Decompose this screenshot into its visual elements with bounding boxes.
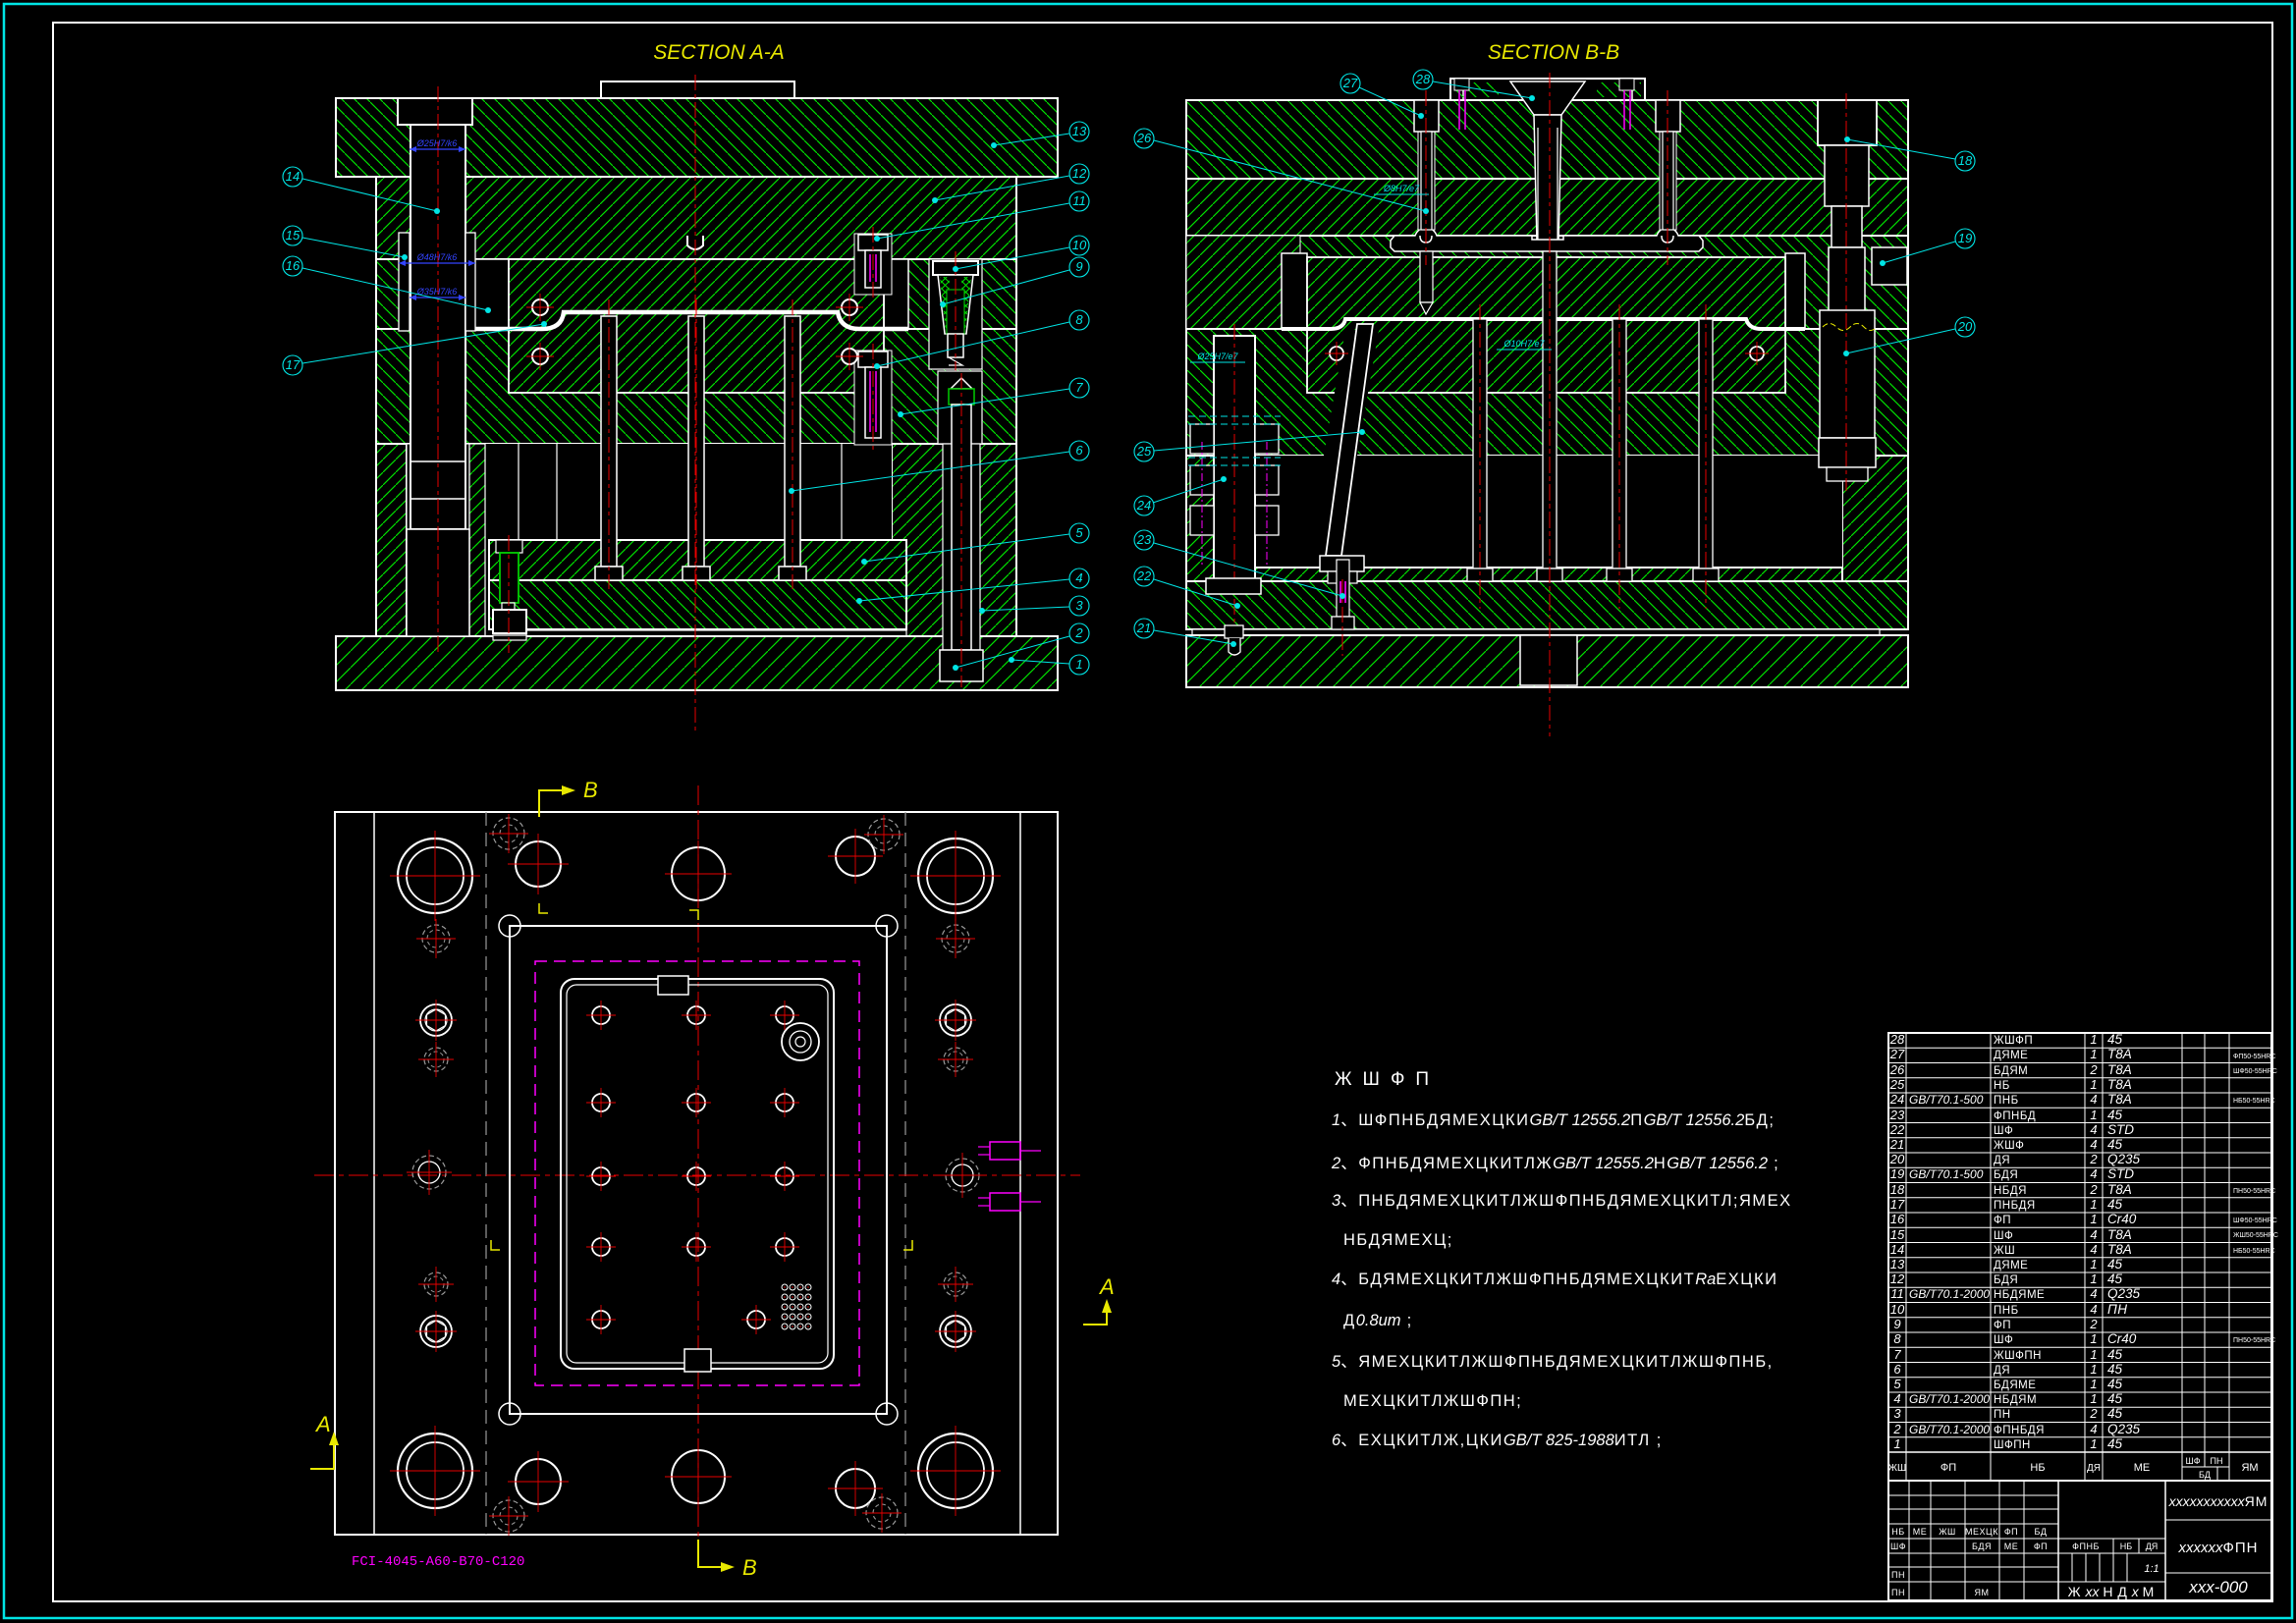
svg-text:ФП50-55HRC: ФП50-55HRC: [2233, 1054, 2275, 1060]
svg-text:24: 24: [1136, 498, 1151, 513]
svg-text:НБ: НБ: [2030, 1462, 2045, 1474]
svg-text:45: 45: [2107, 1257, 2123, 1271]
svg-text:15: 15: [1890, 1227, 1905, 1242]
svg-text:T8A: T8A: [2107, 1077, 2132, 1092]
svg-text:14: 14: [286, 169, 300, 184]
svg-text:2: 2: [2089, 1182, 2098, 1197]
svg-text:xxx-000: xxx-000: [2188, 1578, 2248, 1596]
svg-text:МЕХЦКИТЛЖШФПН;: МЕХЦКИТЛЖШФПН;: [1343, 1392, 1522, 1410]
svg-text:1: 1: [1075, 657, 1082, 672]
svg-text:3、ПНБДЯМЕХЦКИТЛЖШФПНБДЯМЕХЦКИТ: 3、ПНБДЯМЕХЦКИТЛЖШФПНБДЯМЕХЦКИТЛ;ЯМЕХ: [1332, 1192, 1792, 1210]
svg-text:17: 17: [1890, 1197, 1905, 1212]
svg-text:ДЯ: ДЯ: [1994, 1155, 2010, 1166]
svg-text:3: 3: [1075, 598, 1083, 613]
svg-text:БД: БД: [2034, 1527, 2047, 1537]
svg-text:28: 28: [1415, 72, 1431, 86]
svg-text:4: 4: [1893, 1391, 1900, 1406]
svg-text:ПН: ПН: [2211, 1456, 2223, 1466]
svg-text:STD: STD: [2107, 1122, 2134, 1137]
svg-text:23: 23: [1889, 1108, 1905, 1122]
svg-text:19: 19: [1958, 231, 1972, 245]
svg-text:ДЯМЕ: ДЯМЕ: [1994, 1260, 2028, 1271]
svg-text:ШФ: ШФ: [1890, 1542, 1906, 1551]
svg-text:ЯМ: ЯМ: [1975, 1588, 1990, 1597]
svg-text:2: 2: [2089, 1317, 2098, 1331]
svg-text:16: 16: [1890, 1212, 1905, 1226]
svg-text:GB/T70.1-2000: GB/T70.1-2000: [1909, 1423, 1990, 1436]
svg-text:Q235: Q235: [2107, 1286, 2141, 1301]
svg-text:26: 26: [1136, 131, 1152, 145]
svg-text:ШФ50-55HRC: ШФ50-55HRC: [2233, 1217, 2277, 1224]
svg-text:45: 45: [2107, 1391, 2123, 1406]
svg-text:9: 9: [1075, 259, 1082, 274]
svg-text:ФП: ФП: [1994, 1320, 2011, 1331]
svg-text:ПН50-55HRC: ПН50-55HRC: [2233, 1188, 2275, 1195]
svg-text:ФП: ФП: [1941, 1462, 1956, 1474]
svg-text:5: 5: [1893, 1377, 1901, 1391]
svg-text:5: 5: [1075, 525, 1083, 540]
svg-text:45: 45: [2107, 1377, 2123, 1391]
svg-text:Ж xx Н Д x М: Ж xx Н Д x М: [2068, 1584, 2156, 1599]
svg-text:21: 21: [1889, 1137, 1904, 1152]
svg-text:12: 12: [1072, 166, 1087, 181]
svg-text:FCI-4045-A60-B70-C120: FCI-4045-A60-B70-C120: [352, 1554, 524, 1570]
svg-text:T8A: T8A: [2107, 1227, 2132, 1242]
svg-text:B: B: [742, 1555, 757, 1580]
svg-text:26: 26: [1889, 1062, 1905, 1077]
svg-text:20: 20: [1957, 319, 1973, 334]
svg-text:ФПНБД: ФПНБД: [1994, 1110, 2036, 1122]
svg-text:45: 45: [2107, 1347, 2123, 1362]
svg-text:НБ: НБ: [1994, 1080, 2010, 1092]
svg-text:НБДЯМЕХЦ;: НБДЯМЕХЦ;: [1343, 1231, 1453, 1249]
svg-text:20: 20: [1889, 1152, 1905, 1166]
svg-text:4、БДЯМЕХЦКИТЛЖШФПНБДЯМЕХЦКИТRa: 4、БДЯМЕХЦКИТЛЖШФПНБДЯМЕХЦКИТRaЕХЦКИ: [1332, 1271, 1777, 1288]
svg-text:ФП: ФП: [2004, 1527, 2018, 1537]
svg-text:ДЯМЕ: ДЯМЕ: [1994, 1050, 2028, 1061]
svg-text:Cr40: Cr40: [2107, 1331, 2137, 1346]
svg-text:5、ЯМЕХЦКИТЛЖШФПНБДЯМЕХЦКИТЛЖШФ: 5、ЯМЕХЦКИТЛЖШФПНБДЯМЕХЦКИТЛЖШФПНБ,: [1332, 1353, 1774, 1371]
svg-text:ШФ50-55HRC: ШФ50-55HRC: [2233, 1068, 2277, 1075]
svg-text:1: 1: [2090, 1362, 2097, 1377]
svg-text:T8A: T8A: [2107, 1062, 2132, 1077]
svg-text:ЖШ50-55HRC: ЖШ50-55HRC: [2233, 1232, 2278, 1239]
svg-text:ДЯ: ДЯ: [2087, 1463, 2101, 1474]
svg-text:A: A: [1098, 1274, 1115, 1299]
svg-text:1: 1: [2090, 1391, 2097, 1406]
svg-text:45: 45: [2107, 1137, 2123, 1152]
svg-text:8: 8: [1893, 1331, 1901, 1346]
svg-text:Ø8H7/e7: Ø8H7/e7: [1383, 184, 1420, 193]
svg-text:xxxxxxФПН: xxxxxxФПН: [2177, 1540, 2258, 1556]
svg-text:45: 45: [2107, 1271, 2123, 1286]
svg-text:ЯМ: ЯМ: [2241, 1462, 2258, 1474]
svg-text:1: 1: [2090, 1197, 2097, 1212]
svg-text:НБ: НБ: [2120, 1542, 2132, 1551]
svg-text:2: 2: [2089, 1062, 2098, 1077]
svg-text:ПНБДЯ: ПНБДЯ: [1994, 1200, 2036, 1212]
svg-text:SECTION A-A: SECTION A-A: [653, 41, 784, 64]
svg-text:25: 25: [1136, 444, 1152, 459]
svg-text:24: 24: [1889, 1092, 1904, 1107]
svg-text:Q235: Q235: [2107, 1152, 2141, 1166]
svg-text:4: 4: [2090, 1092, 2097, 1107]
svg-text:T8A: T8A: [2107, 1092, 2132, 1107]
svg-text:МЕ: МЕ: [2134, 1462, 2151, 1474]
svg-text:1: 1: [2090, 1331, 2097, 1346]
svg-text:2: 2: [2089, 1152, 2098, 1166]
svg-text:STD: STD: [2107, 1166, 2134, 1181]
svg-text:1:1: 1:1: [2144, 1563, 2159, 1575]
svg-text:45: 45: [2107, 1108, 2123, 1122]
svg-text:ФП: ФП: [2034, 1542, 2048, 1551]
svg-text:4: 4: [2090, 1302, 2097, 1317]
svg-text:16: 16: [286, 258, 301, 273]
svg-text:1: 1: [2090, 1377, 2097, 1391]
svg-text:3: 3: [1893, 1406, 1901, 1421]
svg-text:1: 1: [2090, 1436, 2097, 1451]
svg-text:1: 1: [2090, 1077, 2097, 1092]
svg-text:28: 28: [1889, 1032, 1905, 1047]
svg-text:GB/T70.1-500: GB/T70.1-500: [1909, 1167, 1984, 1181]
svg-text:НБ: НБ: [1891, 1527, 1904, 1537]
svg-text:27: 27: [1889, 1047, 1905, 1061]
svg-text:1: 1: [2090, 1047, 2097, 1061]
svg-text:45: 45: [2107, 1197, 2123, 1212]
svg-text:25: 25: [1889, 1077, 1905, 1092]
svg-text:Ø48H7/k6: Ø48H7/k6: [416, 252, 458, 262]
svg-text:ШФПН: ШФПН: [1994, 1439, 2031, 1451]
svg-text:4: 4: [2090, 1137, 2097, 1152]
svg-text:4: 4: [2090, 1242, 2097, 1257]
svg-text:1: 1: [1893, 1436, 1900, 1451]
svg-text:БДЯМЕ: БДЯМЕ: [1994, 1380, 2036, 1391]
svg-text:БДЯМ: БДЯМ: [1994, 1065, 2028, 1077]
svg-text:1: 1: [2090, 1271, 2097, 1286]
svg-text:4: 4: [2090, 1166, 2097, 1181]
svg-text:ПН: ПН: [1994, 1409, 2011, 1421]
svg-text:БДЯ: БДЯ: [1972, 1542, 1992, 1551]
svg-text:ЖШФ: ЖШФ: [1994, 1140, 2024, 1152]
svg-text:1: 1: [2090, 1347, 2097, 1362]
svg-text:22: 22: [1889, 1122, 1905, 1137]
svg-text:GB/T70.1-2000: GB/T70.1-2000: [1909, 1287, 1990, 1301]
svg-text:13: 13: [1072, 124, 1087, 138]
svg-text:Д0.8um ;: Д0.8um ;: [1343, 1312, 1413, 1329]
svg-text:7: 7: [1893, 1347, 1901, 1362]
svg-text:1: 1: [2090, 1212, 2097, 1226]
svg-text:2: 2: [2089, 1406, 2098, 1421]
svg-text:ПНБ: ПНБ: [1994, 1305, 2019, 1317]
svg-text:ФПНБДЯ: ФПНБДЯ: [1994, 1425, 2045, 1436]
svg-text:Ø25H7/e7: Ø25H7/e7: [1196, 352, 1238, 361]
svg-text:9: 9: [1893, 1317, 1900, 1331]
svg-text:SECTION B-B: SECTION B-B: [1488, 41, 1619, 64]
svg-text:ЖШФПН: ЖШФПН: [1994, 1350, 2042, 1362]
svg-text:T8A: T8A: [2107, 1242, 2132, 1257]
svg-text:ШФ: ШФ: [1994, 1230, 2013, 1242]
svg-text:1、ШФПНБДЯМЕХЦКИGB/T 12555.2ПGB: 1、ШФПНБДЯМЕХЦКИGB/T 12555.2ПGB/T 12556.2…: [1332, 1111, 1775, 1129]
svg-text:GB/T70.1-500: GB/T70.1-500: [1909, 1093, 1984, 1107]
svg-text:45: 45: [2107, 1436, 2123, 1451]
svg-text:45: 45: [2107, 1406, 2123, 1421]
svg-text:Ø25H7/k6: Ø25H7/k6: [416, 138, 458, 148]
svg-text:GB/T70.1-2000: GB/T70.1-2000: [1909, 1392, 1990, 1406]
svg-text:7: 7: [1075, 380, 1083, 395]
svg-text:ПН: ПН: [1891, 1588, 1905, 1597]
svg-text:8: 8: [1075, 312, 1083, 327]
svg-text:6: 6: [1893, 1362, 1901, 1377]
svg-text:T8A: T8A: [2107, 1182, 2132, 1197]
svg-text:27: 27: [1342, 76, 1358, 90]
svg-text:1: 1: [2090, 1257, 2097, 1271]
svg-text:ФПНБ: ФПНБ: [2072, 1542, 2100, 1551]
svg-text:xxxxxxxxxxxЯМ: xxxxxxxxxxxЯМ: [2168, 1493, 2269, 1509]
svg-text:Ø10H7/e7: Ø10H7/e7: [1503, 339, 1545, 349]
svg-text:НБ50-55HRC: НБ50-55HRC: [2233, 1098, 2275, 1105]
svg-text:17: 17: [286, 357, 301, 372]
svg-text:БД: БД: [2199, 1470, 2211, 1480]
svg-text:БДЯ: БДЯ: [1994, 1274, 2018, 1286]
svg-text:ПН: ПН: [2107, 1302, 2128, 1317]
svg-text:ЖШФП: ЖШФП: [1994, 1035, 2033, 1047]
svg-text:ПН50-55HRC: ПН50-55HRC: [2233, 1337, 2275, 1344]
svg-text:45: 45: [2107, 1032, 2123, 1047]
svg-text:ПНБ: ПНБ: [1994, 1095, 2019, 1107]
svg-text:4: 4: [1075, 570, 1082, 585]
svg-text:11: 11: [1072, 193, 1086, 208]
svg-text:45: 45: [2107, 1362, 2123, 1377]
svg-text:21: 21: [1136, 621, 1151, 635]
svg-text:2、ФПНБДЯМЕХЦКИТЛЖGB/T 12555.2Н: 2、ФПНБДЯМЕХЦКИТЛЖGB/T 12555.2НGB/T 12556…: [1331, 1155, 1779, 1172]
svg-text:ЖШФП: ЖШФП: [1335, 1069, 1440, 1090]
svg-text:НБДЯ: НБДЯ: [1994, 1185, 2027, 1197]
svg-text:2: 2: [1074, 625, 1083, 640]
svg-text:13: 13: [1890, 1257, 1905, 1271]
svg-text:ШФ: ШФ: [1994, 1125, 2013, 1137]
svg-text:ЖШ: ЖШ: [1939, 1527, 1956, 1537]
svg-text:15: 15: [286, 228, 301, 243]
svg-text:НБДЯМЕ: НБДЯМЕ: [1994, 1289, 2045, 1301]
svg-text:B: B: [583, 778, 598, 802]
svg-text:БДЯ: БДЯ: [1994, 1169, 2018, 1181]
svg-text:Q235: Q235: [2107, 1422, 2141, 1436]
svg-text:12: 12: [1890, 1271, 1905, 1286]
svg-text:A: A: [314, 1412, 331, 1436]
svg-text:10: 10: [1072, 238, 1087, 252]
svg-text:6: 6: [1075, 443, 1083, 458]
svg-text:ДЯ: ДЯ: [2146, 1542, 2159, 1551]
svg-text:4: 4: [2090, 1227, 2097, 1242]
svg-text:ЖШ: ЖШ: [1888, 1463, 1906, 1474]
svg-text:НБДЯМ: НБДЯМ: [1994, 1394, 2037, 1406]
svg-text:МЕ: МЕ: [1913, 1527, 1928, 1537]
svg-text:T8A: T8A: [2107, 1047, 2132, 1061]
svg-text:1: 1: [2090, 1032, 2097, 1047]
svg-text:10: 10: [1890, 1302, 1905, 1317]
svg-text:4: 4: [2090, 1286, 2097, 1301]
svg-text:Cr40: Cr40: [2107, 1212, 2137, 1226]
svg-text:18: 18: [1890, 1182, 1905, 1197]
svg-text:ПН: ПН: [1891, 1570, 1905, 1580]
svg-text:19: 19: [1890, 1166, 1904, 1181]
svg-text:МЕХЦК: МЕХЦК: [1965, 1527, 1998, 1537]
svg-text:ДЯ: ДЯ: [1994, 1365, 2010, 1377]
svg-text:22: 22: [1136, 568, 1152, 583]
svg-text:ЖШ: ЖШ: [1994, 1245, 2015, 1257]
svg-text:ФП: ФП: [1994, 1215, 2011, 1226]
svg-text:МЕ: МЕ: [2004, 1542, 2019, 1551]
svg-text:ШФ: ШФ: [1994, 1334, 2013, 1346]
svg-text:ШФ: ШФ: [2185, 1456, 2200, 1466]
svg-text:НБ50-55HRC: НБ50-55HRC: [2233, 1248, 2275, 1255]
svg-text:4: 4: [2090, 1122, 2097, 1137]
svg-text:14: 14: [1890, 1242, 1904, 1257]
svg-text:11: 11: [1890, 1286, 1904, 1301]
svg-text:1: 1: [2090, 1108, 2097, 1122]
svg-text:23: 23: [1136, 532, 1152, 547]
svg-text:18: 18: [1958, 153, 1973, 168]
svg-text:4: 4: [2090, 1422, 2097, 1436]
svg-text:6、ЕХЦКИТЛЖ,ЦКИGB/T 825-1988ИТЛ: 6、ЕХЦКИТЛЖ,ЦКИGB/T 825-1988ИТЛ ;: [1332, 1432, 1663, 1449]
svg-text:2: 2: [1892, 1422, 1901, 1436]
